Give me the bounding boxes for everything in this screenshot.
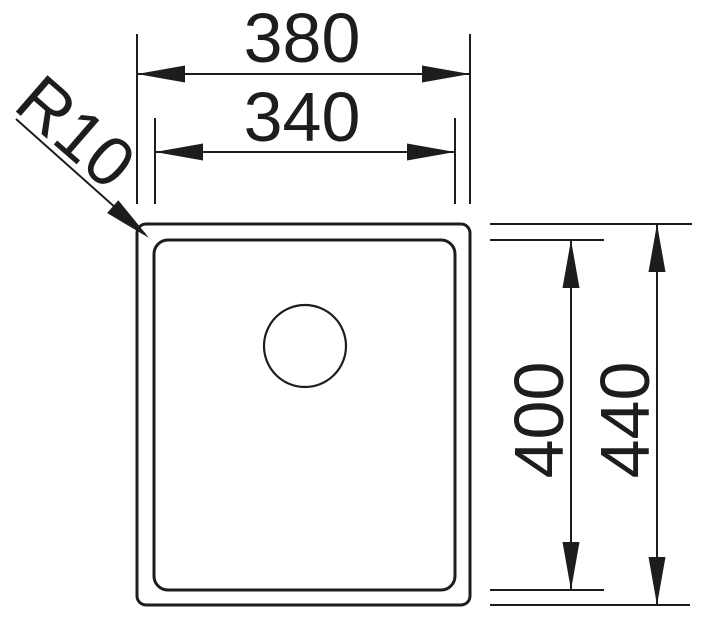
arrowhead-left-icon — [155, 144, 203, 161]
sink-outline-group — [137, 224, 470, 605]
arrowhead-up-icon — [649, 224, 666, 272]
dimension-label-width-outer: 380 — [244, 0, 361, 77]
arrowhead-down-icon — [563, 542, 580, 590]
radius-label: R10 — [2, 60, 150, 203]
dimension-label-depth-inner: 400 — [500, 362, 578, 479]
arrowhead-right-icon — [407, 144, 455, 161]
dimension-width-inner: 340 — [155, 78, 455, 204]
arrowhead-down-icon — [649, 557, 666, 605]
sink-drawing-svg: 380 340 400 440 — [0, 0, 701, 618]
arrowhead-left-icon — [137, 66, 185, 83]
sink-technical-drawing: 380 340 400 440 — [0, 0, 701, 618]
leader-arrowhead-icon — [107, 200, 149, 238]
radius-callout: R10 — [2, 60, 150, 238]
dimension-label-depth-outer: 440 — [586, 362, 664, 479]
arrowhead-up-icon — [563, 240, 580, 288]
arrowhead-right-icon — [422, 66, 470, 83]
sink-inner-bowl — [154, 240, 455, 590]
dimension-label-width-inner: 340 — [244, 78, 361, 156]
